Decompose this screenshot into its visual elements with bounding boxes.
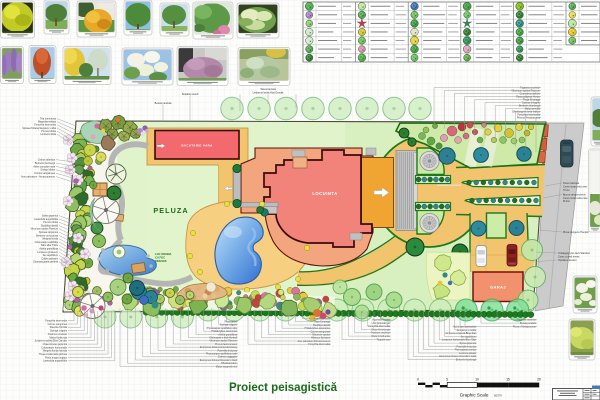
svg-text:Leskerus lanka Hoa Gercak: Leskerus lanka Hoa Gercak [253,91,285,94]
svg-text:Prunus Atropurpurea: Prunus Atropurpurea [517,117,541,120]
svg-text:Scadosp tenuit: Scadosp tenuit [182,93,199,96]
svg-text:H box: H box [563,189,570,192]
svg-text:DESCHIS: DESCHIS [155,259,167,263]
svg-text:CU FOC: CU FOC [155,256,165,260]
svg-text:BUCATARIE VARA: BUCATARIE VARA [181,144,213,148]
svg-text:Opulatus deviem: Opulatus deviem [558,259,577,262]
svg-text:M box: M box [563,200,571,203]
svg-text:GARAJ: GARAJ [490,285,506,290]
svg-text:10: 10 [475,378,479,382]
svg-text:PELUZA: PELUZA [153,206,188,215]
svg-text:Malus sargentii mini: Malus sargentii mini [216,365,238,368]
svg-text:Chamaecyparis pisifera: Chamaecyparis pisifera [33,261,59,264]
svg-text:Lonicera nitida: Lonicera nitida [40,133,56,136]
svg-text:LOCUINTA: LOCUINTA [312,191,337,196]
svg-text:0: 0 [417,378,419,382]
svg-text:Graphic Scale: Graphic Scale [460,393,489,398]
svg-text:Lavandula angustifolia: Lavandula angustifolia [43,360,67,363]
svg-text:Picea x Moriapocorae: Picea x Moriapocorae [513,325,537,328]
svg-text:Acer palmatum - Atropurpureum: Acer palmatum - Atropurpureum [21,176,55,179]
svg-text:METRI: METRI [494,394,502,398]
svg-text:Proiect peisagistică: Proiect peisagistică [229,382,338,394]
svg-text:15: 15 [506,378,510,382]
svg-text:Betula pendula: Betula pendula [155,102,172,105]
svg-text:Thujotte raro: Thujotte raro [376,338,390,341]
svg-text:Berberis thunbergii: Berberis thunbergii [456,359,477,362]
svg-text:LOC ODIHNA: LOC ODIHNA [155,252,172,256]
svg-text:5: 5 [446,378,448,382]
svg-text:Forsythia intermedia: Forsythia intermedia [308,343,330,346]
svg-text:Picea pungens Hoopsii: Picea pungens Hoopsii [563,231,589,234]
svg-text:20: 20 [537,378,541,382]
